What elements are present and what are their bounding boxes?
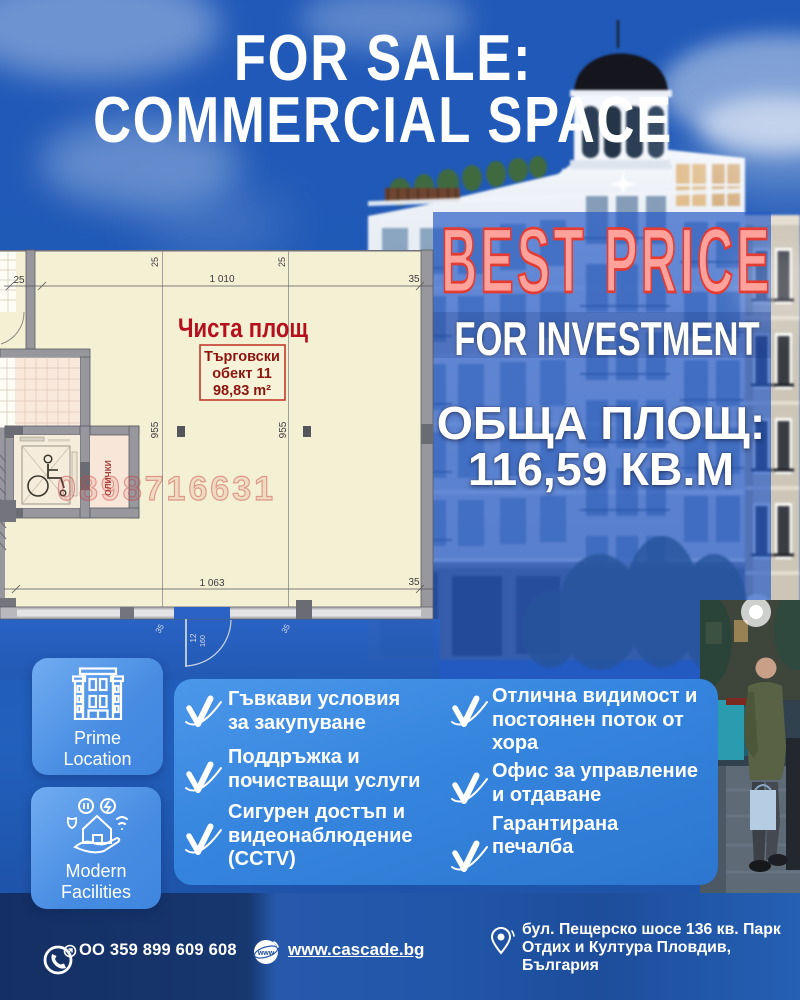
svg-text:25: 25 (277, 257, 287, 267)
svg-text:35: 35 (408, 274, 420, 285)
svg-text:www: www (257, 950, 275, 957)
svg-text:0898716631: 0898716631 (57, 470, 276, 508)
svg-text:98,83 m²: 98,83 m² (213, 383, 271, 399)
svg-text:25: 25 (150, 257, 160, 267)
svg-text:Търговски: Търговски (204, 349, 280, 365)
svg-text:955: 955 (278, 421, 289, 438)
svg-text:1 010: 1 010 (209, 274, 234, 285)
svg-text:12: 12 (189, 633, 198, 642)
svg-text:25: 25 (13, 275, 25, 286)
svg-text:35: 35 (408, 577, 420, 588)
svg-text:35: 35 (280, 622, 293, 635)
svg-text:обект 11: обект 11 (212, 366, 272, 382)
svg-text:35: 35 (154, 622, 167, 635)
svg-text:955: 955 (150, 421, 161, 438)
svg-text:1 063: 1 063 (199, 578, 224, 589)
svg-text:Чиста площ: Чиста площ (178, 313, 308, 343)
svg-text:160: 160 (200, 635, 207, 647)
